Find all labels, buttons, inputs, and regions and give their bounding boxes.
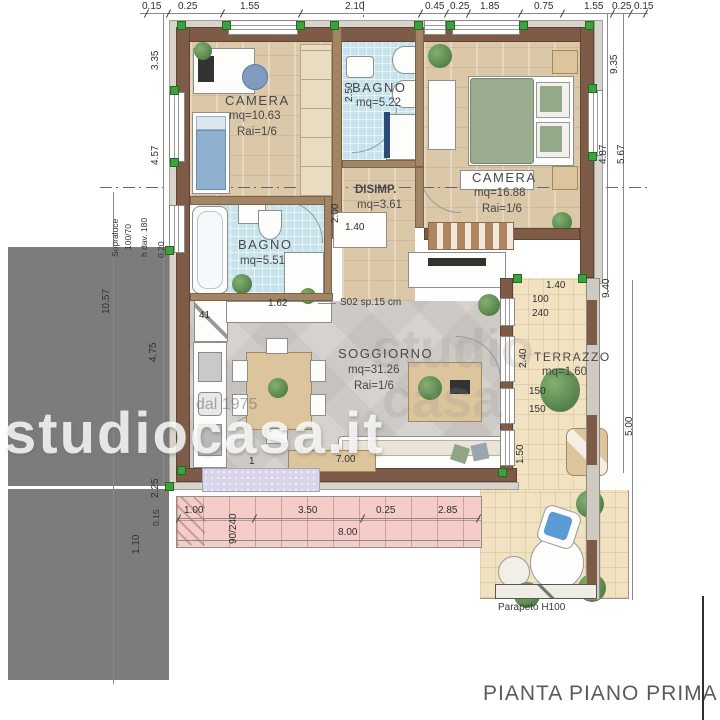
- annotation-slab: S02 sp.15 cm: [340, 297, 401, 308]
- laptop: [198, 56, 214, 82]
- plant: [428, 44, 452, 68]
- room-area-bagno1: mq=5.22: [356, 97, 401, 109]
- corner-marker: [578, 274, 587, 283]
- corner-marker: [165, 246, 174, 255]
- stove: [198, 352, 222, 382]
- room-label-soggiorno: SOGGIORNO: [338, 346, 433, 361]
- dim-right: 4.87: [598, 118, 609, 164]
- frame-border-line: [702, 596, 704, 720]
- wall-bagno2-bottom: [190, 293, 333, 301]
- dim-top: 2.10: [345, 1, 364, 12]
- room-area-terrazzo: mq=1.60: [542, 366, 587, 378]
- chair: [310, 360, 326, 382]
- dim-left: 4.57: [150, 115, 161, 165]
- door-terrazzo-150: [500, 430, 515, 466]
- floor-plan-canvas: 0.15 0.25 1.55 2.10 0.45 0.25 1.85 0.75 …: [0, 0, 720, 720]
- annotation-sopraluce-size: 100/70: [123, 200, 133, 250]
- dim-top: 1.55: [240, 1, 259, 12]
- dim-top: 0.25: [450, 1, 469, 12]
- dim-top: 0.15: [142, 1, 161, 12]
- room-ratio-soggiorno: Rai=1/6: [354, 380, 394, 392]
- annotation-sopraluce: Sopraluce: [110, 193, 120, 257]
- dim-left: 4.75: [148, 312, 159, 362]
- dim-right: 9.40: [601, 248, 612, 298]
- bathtub-inner: [197, 211, 223, 289]
- dim-top: 1.55: [584, 1, 603, 12]
- shower: [386, 114, 418, 160]
- corner-marker: [513, 274, 522, 283]
- dim-right: 5.67: [616, 118, 627, 164]
- dim-bottom: 0.25: [376, 505, 395, 516]
- dim-cabinet: 1.40: [345, 222, 364, 233]
- watermark-brand: studiocasa.it: [4, 400, 385, 467]
- nightstand: [552, 50, 578, 74]
- dim-window-240: 240: [532, 308, 549, 319]
- dim-top: 0.75: [534, 1, 553, 12]
- corner-marker: [177, 466, 186, 475]
- room-ratio-camera1: Rai=1/6: [237, 126, 277, 138]
- corner-marker: [170, 86, 179, 95]
- dim-left: 3.35: [150, 30, 161, 70]
- wall-camera1-bagno2: [190, 196, 332, 205]
- sofa-pillow-gray: [471, 443, 490, 462]
- dim-window-150b: 150: [529, 404, 546, 415]
- chair: [232, 360, 248, 382]
- corner-marker: [296, 21, 305, 30]
- wall-disimp-camera2: [415, 167, 424, 228]
- room-label-camera1: CAMERA: [225, 93, 290, 108]
- annotation-parapet: Parapeto H100: [498, 602, 565, 613]
- corner-marker: [177, 21, 186, 30]
- tv: [428, 258, 486, 266]
- parapet-bar: [495, 584, 597, 599]
- room-area-soggiorno: mq=31.26: [348, 364, 399, 376]
- dim-terrazzo-bot: 1.50: [515, 424, 526, 464]
- shower-glass: [384, 112, 390, 158]
- wardrobe-camera2: [428, 80, 456, 150]
- corner-marker: [165, 482, 174, 491]
- chair: [266, 338, 288, 354]
- dim-line-bottom-1: [176, 518, 480, 519]
- dim-terrazzo-mid: 2.40: [518, 326, 529, 368]
- pillow-green: [540, 126, 562, 152]
- single-bed-blanket: [196, 130, 226, 190]
- dim-disimp-height: 2.00: [330, 185, 341, 223]
- dim-kitchen: 1.62: [268, 298, 287, 309]
- dim-line-right-3: [632, 280, 633, 600]
- window-terrazzo-150: [500, 388, 515, 424]
- room-label-disimp: DISIMP.: [355, 184, 396, 196]
- window-camera2-top: [452, 20, 520, 35]
- room-area-disimp: mq=3.61: [357, 199, 402, 211]
- parapet-block-2: [587, 415, 597, 465]
- dim-unit41: 41: [199, 310, 210, 321]
- table-centerpiece-plant: [268, 378, 288, 398]
- dim-top: 0.25: [178, 1, 197, 12]
- corner-marker: [446, 21, 455, 30]
- corner-marker: [222, 21, 231, 30]
- dim-bottom: 3.50: [298, 505, 317, 516]
- watermark-ghost-casa: casa: [382, 368, 502, 430]
- toilet: [258, 210, 282, 240]
- room-label-bagno1: BAGNO: [352, 80, 406, 95]
- single-bed-pillow: [196, 116, 226, 130]
- window-camera1-top: [228, 20, 298, 35]
- wall-bagno1-camera2: [415, 27, 424, 167]
- nightstand: [552, 166, 578, 190]
- dim-bottom: 2.85: [438, 505, 457, 516]
- room-area-bagno2: mq=5.51: [240, 255, 285, 267]
- corner-marker: [588, 152, 597, 161]
- slab-leader-line: [318, 303, 336, 304]
- double-bed-duvet: [470, 78, 534, 164]
- dim-left: 0.15: [151, 500, 161, 526]
- corner-marker: [414, 21, 423, 30]
- corner-marker: [170, 158, 179, 167]
- wardrobe-camera1: [300, 44, 332, 196]
- dim-line-bottom-2: [176, 540, 480, 541]
- drawing-title: PIANTA PIANO PRIMA 1/50: [483, 682, 720, 706]
- dim-window-100: 100: [532, 294, 549, 305]
- dim-line-top: [140, 13, 648, 14]
- corner-marker: [588, 84, 597, 93]
- dim-top: 1.85: [480, 1, 499, 12]
- dim-right: 5.00: [624, 386, 635, 436]
- room-ratio-camera2: Rai=1/6: [482, 203, 522, 215]
- room-area-camera1: mq=10.63: [229, 110, 280, 122]
- dim-bagno1-width: 2.50: [344, 62, 355, 102]
- dim-left: 0.20: [156, 232, 166, 258]
- dim-left: 10.57: [101, 262, 112, 314]
- corner-marker: [585, 21, 594, 30]
- plant: [194, 42, 212, 60]
- room-label-terrazzo: TERRAZZO: [534, 350, 611, 364]
- annotation-h-davanzale: h dav. 180: [139, 193, 149, 257]
- wall-bagno1-disimp: [342, 160, 416, 168]
- parapet-block-1: [587, 300, 597, 345]
- dim-bottom-window: 90/240: [228, 498, 239, 544]
- dim-left: 1.10: [131, 514, 142, 554]
- dim-bottom: 1.00: [184, 505, 203, 516]
- room-area-camera2: mq=16.88: [474, 187, 525, 199]
- dim-terrazzo-top: 1.40: [546, 280, 565, 291]
- office-chair: [242, 64, 268, 90]
- kitchen-unit-41: [194, 300, 228, 342]
- window-camera1-left: [169, 92, 185, 162]
- corner-marker: [498, 468, 507, 477]
- room-label-camera2: CAMERA: [472, 170, 537, 185]
- dim-top: 0.25: [612, 1, 631, 12]
- neighbor-building-lower: [8, 489, 169, 680]
- entrance-door-sill: [202, 468, 320, 492]
- corner-marker: [519, 21, 528, 30]
- corner-marker: [330, 21, 339, 30]
- dim-bottom: 8.00: [338, 527, 357, 538]
- room-label-bagno2: BAGNO: [238, 237, 292, 252]
- toilet: [392, 46, 416, 74]
- parapet-block-3: [587, 540, 597, 585]
- striped-bench: [428, 222, 514, 250]
- plant: [478, 294, 500, 316]
- dim-top: 0.45: [425, 1, 444, 12]
- dim-top: 0.15: [634, 1, 653, 12]
- dim-window-150a: 150: [529, 386, 546, 397]
- plant: [232, 274, 252, 294]
- pillow-green: [540, 86, 562, 112]
- dim-right: 9.35: [609, 30, 620, 74]
- window-small-top: [424, 20, 446, 35]
